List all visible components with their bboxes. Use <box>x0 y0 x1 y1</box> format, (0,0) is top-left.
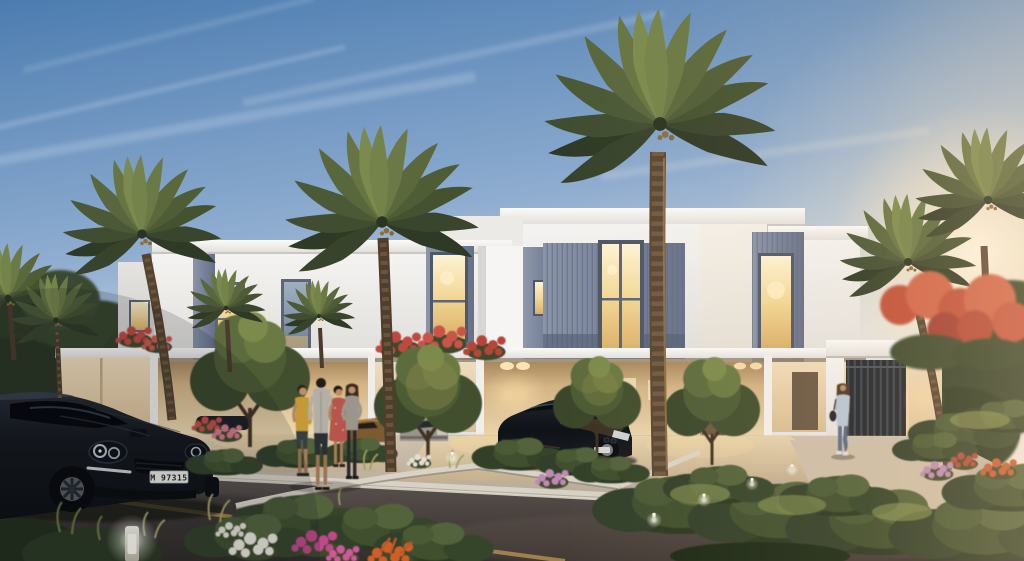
atmosphere-overlay <box>0 0 1024 561</box>
rendered-scene: Dusk architectural rendering of a modern… <box>0 0 1024 561</box>
scene-canvas: Dusk architectural rendering of a modern… <box>0 0 1024 561</box>
